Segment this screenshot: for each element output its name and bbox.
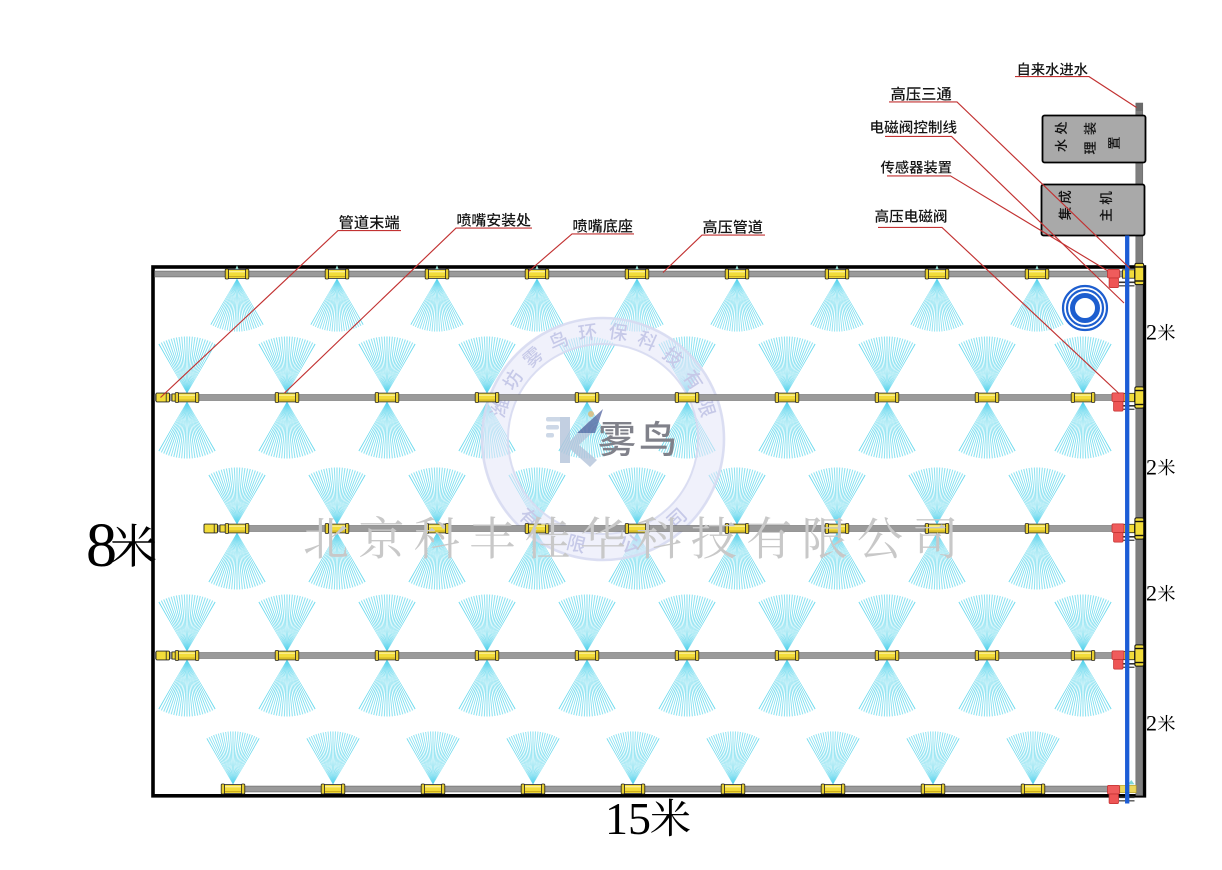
- svg-text:8: 8: [86, 512, 117, 580]
- svg-text:2: 2: [1146, 581, 1157, 606]
- svg-text:2: 2: [1146, 711, 1157, 736]
- svg-text:15: 15: [605, 793, 651, 844]
- svg-text:2: 2: [1146, 320, 1157, 345]
- svg-text:2: 2: [1146, 455, 1157, 480]
